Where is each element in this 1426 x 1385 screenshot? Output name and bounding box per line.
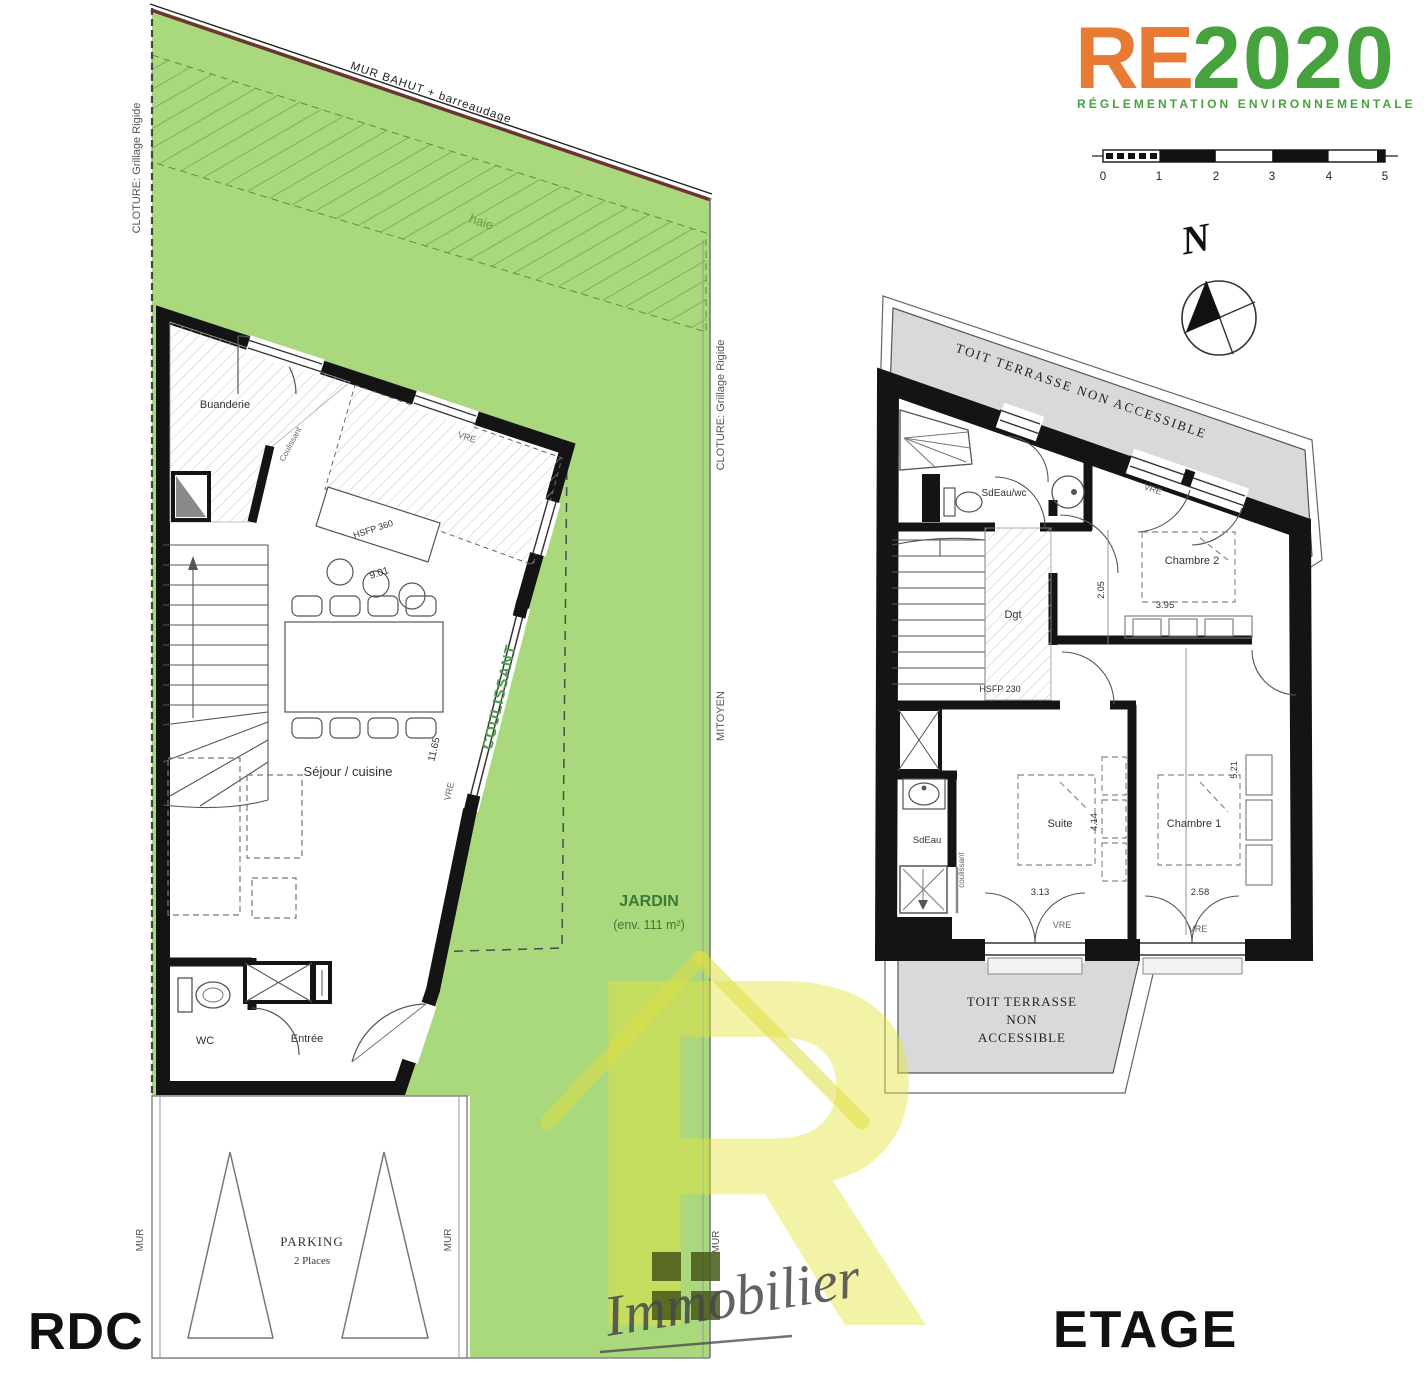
etage-plan: TOIT TERRASSE NON ACCESSIBLE TOIT TERRAS… [880,296,1322,1093]
sdeau-sink-tap [922,786,927,791]
compass-needle [1186,281,1221,332]
scale-2: 2 [1213,171,1219,183]
etage-vre-b1: VRE [1053,920,1072,930]
mur-right-label: MUR [443,1229,454,1252]
suite-label: Suite [1047,818,1072,830]
etage-floor-label: ETAGE [1053,1300,1238,1360]
dim-395: 3.95 [1156,600,1175,611]
scale-5: 5 [1382,171,1388,183]
chambre2-label: Chambre 2 [1165,555,1219,567]
scale-0: 0 [1100,171,1106,183]
dim-205: 2.05 [1096,581,1106,599]
sdeau-label: SdEau [913,835,942,846]
entree-label: Entrée [291,1033,323,1045]
watermark: R Immobilier [548,872,936,1385]
hsfp-230-label: HSFP 230 [979,684,1020,694]
compass: N [1177,214,1256,355]
toit-bottom-line2: NON [1006,1012,1037,1027]
scale-4: 4 [1326,171,1333,183]
wc-label: WC [196,1035,214,1047]
duct-column [922,474,940,522]
scale-seg-1-2 [1159,150,1215,162]
dim-258: 2.58 [1191,887,1210,898]
mitoyen-label: MITOYEN [715,691,727,741]
floorplan-sheet: PARKING 2 Places MUR MUR MUR Coulissant … [0,0,1426,1385]
bay-stub-bottom [470,795,474,812]
bay-stub-top [519,601,523,617]
mur-left-label: MUR [135,1229,146,1252]
etage-vre-b2: VRE [1189,924,1208,934]
north-label: N [1177,214,1216,264]
buanderie-label: Buanderie [200,399,250,411]
scale-3: 3 [1269,171,1275,183]
re2020-logo-year: 2020 [1192,14,1396,102]
scale-seg-3-4 [1272,150,1328,162]
toit-bottom-line1: TOIT TERRASSE [967,994,1077,1009]
bwin2-sill [1143,958,1242,974]
toit-bottom-line3: ACCESSIBLE [978,1030,1066,1045]
chambre1-label: Chambre 1 [1167,818,1221,830]
plan-drawing: PARKING 2 Places MUR MUR MUR Coulissant … [0,0,1426,1385]
sejour-label: Séjour / cuisine [304,764,393,779]
etage-coulissant-label: coulissant [957,851,966,887]
parking-area [152,1096,467,1358]
scale-1: 1 [1156,171,1162,183]
dim-414: 4.14 [1089,813,1099,831]
rdc-floor-label: RDC [28,1302,144,1362]
parking-subtitle: 2 Places [294,1255,330,1267]
re2020-logo-subtitle: RÉGLEMENTATION ENVIRONNEMENTALE [1077,97,1416,111]
bwin1-sill [988,958,1082,974]
scale-end-cap [1377,150,1385,162]
sdeau-wc-label: SdEau/wc [981,488,1026,499]
scale-bar: 0 1 2 3 4 5 [1092,150,1398,183]
cloture-left-label: CLOTURE: Grillage Rigide [131,103,143,234]
dgt-label: Dgt [1004,609,1021,621]
dim-521: 5.21 [1229,761,1239,779]
etage-sink-tap [1071,489,1077,495]
re2020-logo-re: RE [1075,14,1191,102]
cloture-right-label: CLOTURE: Grillage Rigide [715,340,727,471]
dim-313: 3.13 [1031,887,1050,898]
parking-title: PARKING [280,1234,344,1249]
